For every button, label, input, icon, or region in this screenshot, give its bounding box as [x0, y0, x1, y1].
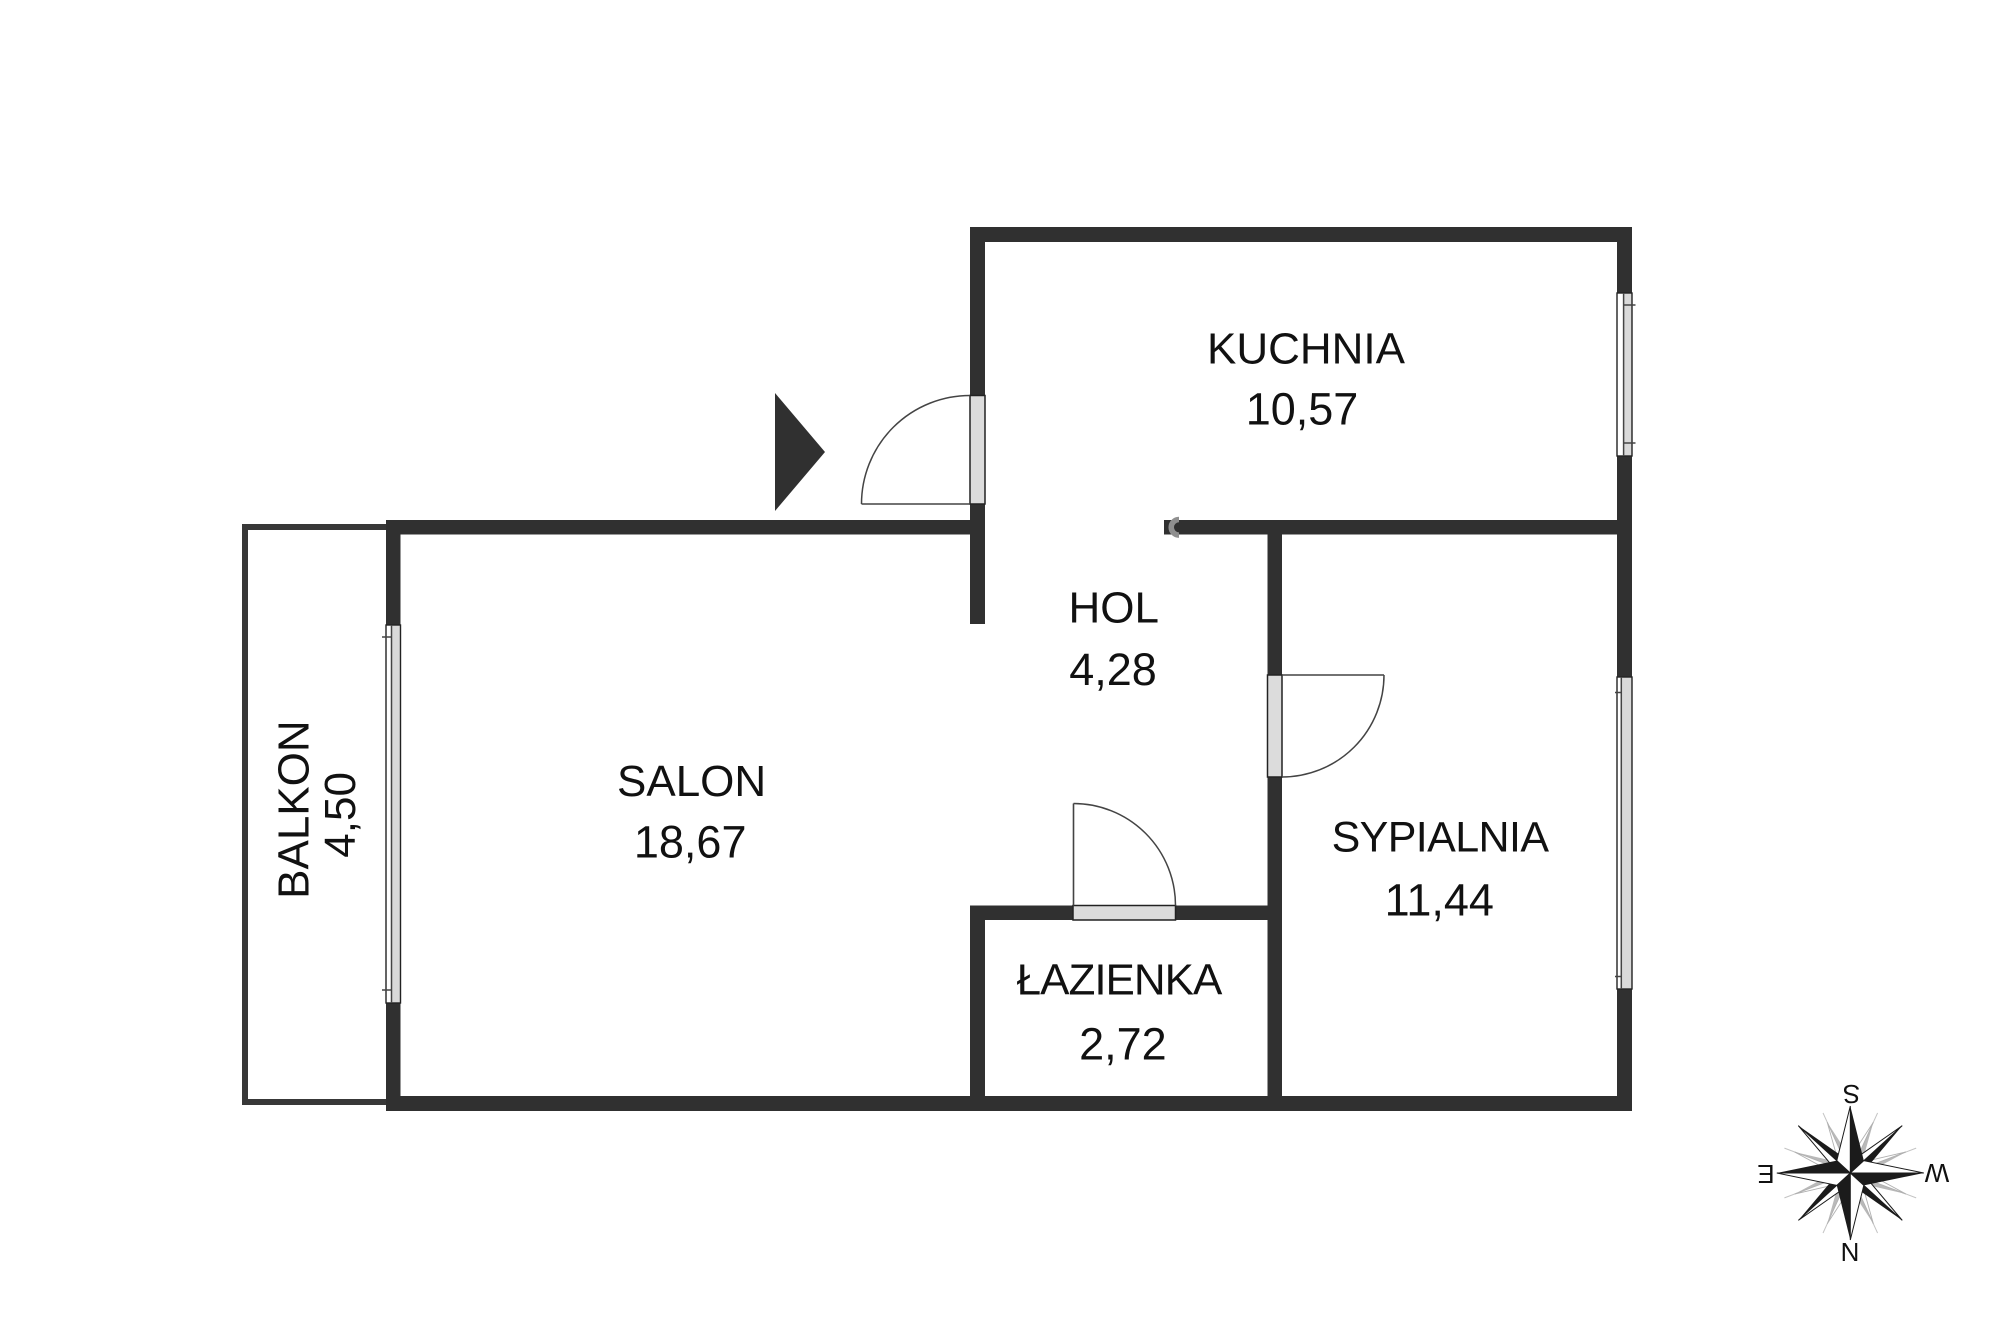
svg-text:N: N — [1841, 1237, 1860, 1267]
svg-text:4,28: 4,28 — [1069, 644, 1157, 695]
svg-text:18,67: 18,67 — [634, 817, 747, 868]
svg-text:W: W — [1924, 1158, 1949, 1188]
svg-text:ŁAZIENKA: ŁAZIENKA — [1017, 956, 1223, 1005]
svg-text:S: S — [1843, 1079, 1860, 1109]
svg-text:SALON: SALON — [617, 757, 766, 806]
svg-text:SYPIALNIA: SYPIALNIA — [1332, 814, 1550, 862]
svg-text:BALKON: BALKON — [270, 720, 319, 899]
svg-text:HOL: HOL — [1068, 584, 1158, 633]
svg-text:KUCHNIA: KUCHNIA — [1207, 325, 1406, 374]
svg-text:11,44: 11,44 — [1385, 875, 1494, 926]
svg-text:E: E — [1757, 1159, 1774, 1189]
svg-text:4,50: 4,50 — [316, 772, 365, 858]
svg-text:10,57: 10,57 — [1246, 384, 1359, 435]
svg-text:2,72: 2,72 — [1079, 1019, 1167, 1070]
